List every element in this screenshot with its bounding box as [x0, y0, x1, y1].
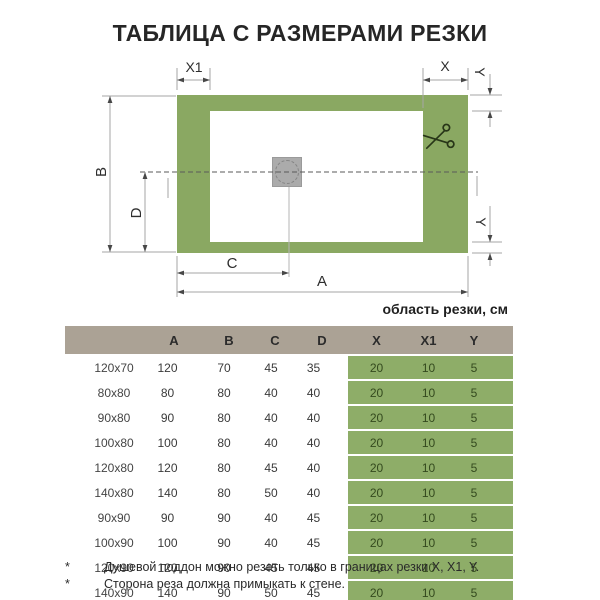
table-row: 120x70 120 70 45 35 20 10 5 — [65, 355, 513, 380]
cell-c: 40 — [254, 530, 296, 555]
cell-a: 100 — [144, 530, 204, 555]
cell-d: 45 — [296, 530, 348, 555]
arrow-heads — [108, 78, 493, 295]
cell-x1: 10 — [405, 380, 452, 405]
cell-c: 40 — [254, 405, 296, 430]
label-x: X — [427, 58, 463, 74]
cell-b: 90 — [204, 505, 254, 530]
cell-d: 40 — [296, 430, 348, 455]
cell-x: 20 — [348, 455, 405, 480]
cell-size: 120x80 — [65, 455, 144, 480]
footnotes: * Душевой поддон можно резать только в г… — [65, 559, 479, 593]
cell-x1: 10 — [405, 455, 452, 480]
table-row: 140x80 140 80 50 40 20 10 5 — [65, 480, 513, 505]
cell-d: 35 — [296, 355, 348, 380]
cell-b: 80 — [204, 380, 254, 405]
label-y-top: Y — [469, 61, 491, 83]
cell-size: 120x70 — [65, 355, 144, 380]
cell-c: 45 — [254, 355, 296, 380]
cell-y: 5 — [452, 480, 513, 505]
cell-b: 80 — [204, 455, 254, 480]
cell-size: 90x90 — [65, 505, 144, 530]
table-row: 90x90 90 90 40 45 20 10 5 — [65, 505, 513, 530]
cell-a: 140 — [144, 480, 204, 505]
cell-d: 40 — [296, 455, 348, 480]
footnote-marker: * — [65, 576, 104, 593]
cell-y: 5 — [452, 405, 513, 430]
cell-b: 90 — [204, 530, 254, 555]
cell-size: 100x90 — [65, 530, 144, 555]
cell-c: 50 — [254, 480, 296, 505]
col-header-b: B — [204, 326, 254, 355]
cell-size: 90x80 — [65, 405, 144, 430]
table-row: 80x80 80 80 40 40 20 10 5 — [65, 380, 513, 405]
cell-x: 20 — [348, 480, 405, 505]
cell-size: 140x80 — [65, 480, 144, 505]
cell-c: 40 — [254, 505, 296, 530]
cell-y: 5 — [452, 530, 513, 555]
col-header-a: A — [144, 326, 204, 355]
col-header-c: C — [254, 326, 296, 355]
cell-c: 45 — [254, 455, 296, 480]
footnote-text: Сторона реза должна примыкать к стене. — [104, 576, 345, 593]
cell-x1: 10 — [405, 530, 452, 555]
cell-x: 20 — [348, 405, 405, 430]
cell-b: 70 — [204, 355, 254, 380]
table-row: 120x80 120 80 45 40 20 10 5 — [65, 455, 513, 480]
cell-d: 40 — [296, 380, 348, 405]
label-c: C — [214, 255, 250, 272]
cell-x1: 10 — [405, 405, 452, 430]
extension-lines — [102, 68, 502, 297]
cell-c: 40 — [254, 380, 296, 405]
footnote-line: * Сторона реза должна примыкать к стене. — [65, 576, 479, 593]
label-y-bottom: Y — [470, 211, 492, 233]
label-b: B — [91, 161, 113, 183]
cell-y: 5 — [452, 355, 513, 380]
dimension-lines — [0, 0, 600, 310]
cell-a: 100 — [144, 430, 204, 455]
cell-a: 120 — [144, 455, 204, 480]
col-header-d: D — [296, 326, 348, 355]
footnote-marker: * — [65, 559, 104, 576]
cell-d: 45 — [296, 505, 348, 530]
cell-a: 90 — [144, 405, 204, 430]
col-header-x1: X1 — [405, 326, 452, 355]
cell-y: 5 — [452, 505, 513, 530]
cut-zone-label: область резки, см — [348, 301, 508, 317]
measure-lines — [110, 74, 490, 292]
table-header-row: A B C D X X1 Y — [65, 326, 513, 355]
table-row: 90x80 90 80 40 40 20 10 5 — [65, 405, 513, 430]
cell-y: 5 — [452, 455, 513, 480]
cell-y: 5 — [452, 430, 513, 455]
cell-d: 40 — [296, 480, 348, 505]
table-row: 100x80 100 80 40 40 20 10 5 — [65, 430, 513, 455]
cell-b: 80 — [204, 405, 254, 430]
cell-size: 100x80 — [65, 430, 144, 455]
cell-x1: 10 — [405, 480, 452, 505]
cell-b: 80 — [204, 430, 254, 455]
cell-x1: 10 — [405, 430, 452, 455]
cell-c: 40 — [254, 430, 296, 455]
col-header-size — [65, 326, 144, 355]
cell-b: 80 — [204, 480, 254, 505]
cell-x: 20 — [348, 355, 405, 380]
cell-size: 80x80 — [65, 380, 144, 405]
col-header-y: Y — [452, 326, 513, 355]
cell-a: 80 — [144, 380, 204, 405]
cell-a: 90 — [144, 505, 204, 530]
table-row: 100x90 100 90 40 45 20 10 5 — [65, 530, 513, 555]
cell-x: 20 — [348, 430, 405, 455]
label-x1: X1 — [176, 59, 212, 75]
cell-x: 20 — [348, 530, 405, 555]
footnote-line: * Душевой поддон можно резать только в г… — [65, 559, 479, 576]
col-header-x: X — [348, 326, 405, 355]
cell-x: 20 — [348, 505, 405, 530]
cell-d: 40 — [296, 405, 348, 430]
cell-x1: 10 — [405, 505, 452, 530]
cell-x1: 10 — [405, 355, 452, 380]
footnote-text: Душевой поддон можно резать только в гра… — [104, 559, 479, 576]
cell-a: 120 — [144, 355, 204, 380]
label-d: D — [126, 202, 148, 224]
label-a: A — [304, 273, 340, 290]
page: ТАБЛИЦА С РАЗМЕРАМИ РЕЗКИ — [0, 0, 600, 600]
cell-x: 20 — [348, 380, 405, 405]
cell-y: 5 — [452, 380, 513, 405]
